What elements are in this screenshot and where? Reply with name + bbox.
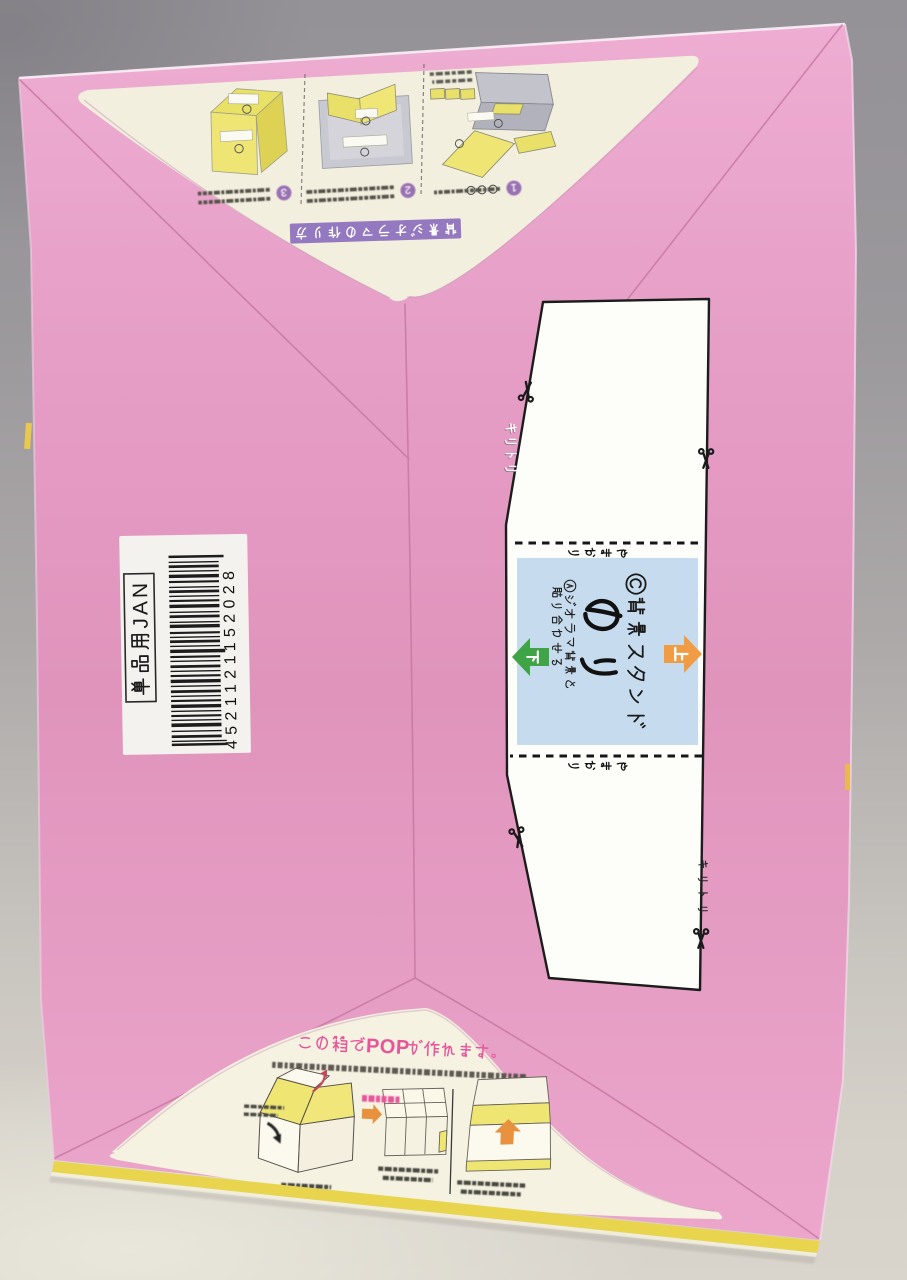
svg-text:JAN: JAN — [129, 580, 153, 629]
svg-text:3: 3 — [281, 186, 288, 198]
svg-text:POP: POP — [365, 1035, 410, 1059]
svg-text:4521121152028: 4521121152028 — [221, 565, 241, 749]
svg-text:1: 1 — [511, 181, 518, 193]
svg-text:2: 2 — [404, 183, 411, 195]
